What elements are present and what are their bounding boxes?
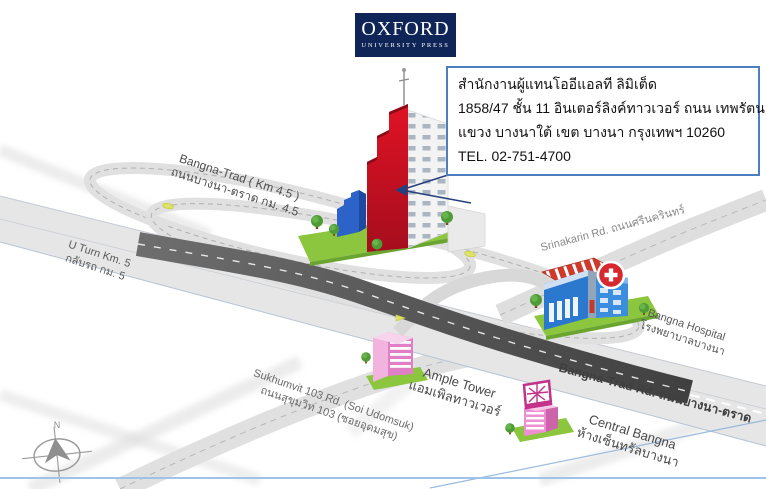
address-line-4: TEL. 02-751-4700: [458, 144, 748, 168]
oup-logo: OXFORD UNIVERSITY PRESS: [355, 13, 456, 57]
footer-divider: [0, 477, 766, 479]
address-line-1: สำนักงานผู้แทนโออีแอลที ลิมิเต็ด: [458, 72, 748, 96]
annex-light-building: [448, 206, 485, 252]
compass-north-label: N: [50, 420, 64, 431]
tree-icon: [361, 352, 371, 363]
blue-annex-building: [337, 190, 359, 237]
address-callout-box: สำนักงานผู้แทนโออีแอลที ลิมิเต็ด 1858/47…: [446, 66, 760, 176]
address-line-2: 1858/47 ชั้น 11 อินเตอร์ลิงค์ทาวเวอร์ ถน…: [458, 96, 748, 120]
hospital-cross-icon: [598, 262, 624, 288]
address-line-3: แขวง บางนาใต้ เขต บางนา กรุงเทพฯ 10260: [458, 120, 748, 144]
oup-logo-subtitle: UNIVERSITY PRESS: [355, 42, 456, 49]
oup-logo-title: OXFORD: [355, 18, 456, 40]
map-canvas: Bangna-Trad ( Km 4.5 ) ถนนบางนา-ตราด กม.…: [0, 0, 766, 489]
tower-antenna: [399, 68, 409, 105]
